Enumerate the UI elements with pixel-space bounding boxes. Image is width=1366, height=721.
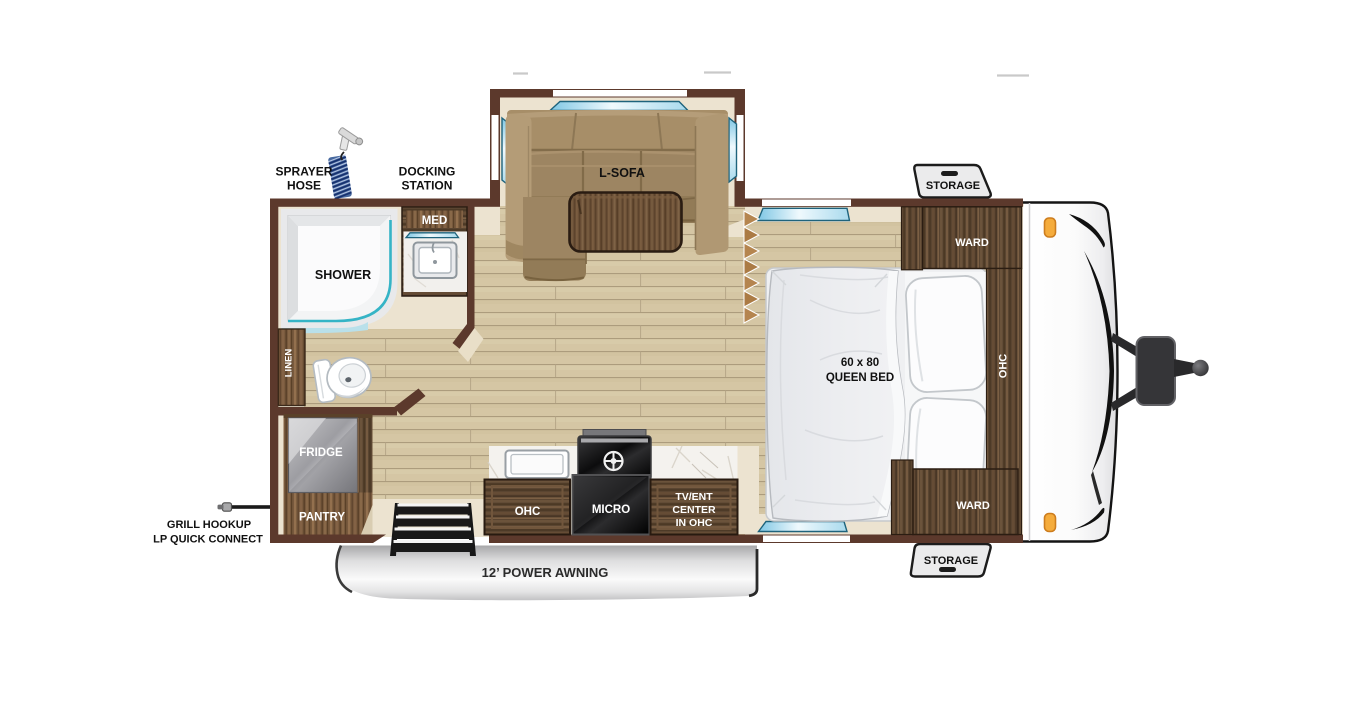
svg-text:WARD: WARD — [955, 237, 989, 249]
svg-text:MED: MED — [422, 215, 448, 227]
svg-text:12’ POWER AWNING: 12’ POWER AWNING — [482, 565, 609, 580]
svg-text:STORAGE: STORAGE — [924, 555, 978, 567]
svg-text:CENTER: CENTER — [672, 504, 716, 516]
svg-text:MICRO: MICRO — [592, 504, 630, 516]
svg-text:SPRAYER: SPRAYER — [276, 165, 333, 179]
svg-text:DOCKING: DOCKING — [399, 165, 456, 179]
svg-text:STORAGE: STORAGE — [926, 180, 980, 192]
svg-text:OHC: OHC — [998, 354, 1010, 379]
svg-text:LINEN: LINEN — [284, 349, 295, 378]
svg-text:L-SOFA: L-SOFA — [599, 166, 645, 180]
svg-text:IN OHC: IN OHC — [676, 517, 713, 529]
svg-text:STATION: STATION — [402, 179, 453, 193]
svg-text:SHOWER: SHOWER — [315, 268, 371, 282]
svg-text:HOSE: HOSE — [287, 179, 321, 193]
svg-text:GRILL HOOKUP: GRILL HOOKUP — [167, 519, 251, 531]
svg-text:TV/ENT: TV/ENT — [675, 491, 713, 503]
svg-text:OHC: OHC — [515, 506, 541, 518]
svg-text:LP QUICK CONNECT: LP QUICK CONNECT — [153, 534, 263, 546]
svg-text:FRIDGE: FRIDGE — [299, 447, 343, 459]
svg-text:WARD: WARD — [956, 500, 990, 512]
svg-text:QUEEN BED: QUEEN BED — [826, 372, 894, 384]
svg-text:PANTRY: PANTRY — [299, 512, 345, 524]
svg-text:60 x 80: 60 x 80 — [841, 357, 879, 369]
